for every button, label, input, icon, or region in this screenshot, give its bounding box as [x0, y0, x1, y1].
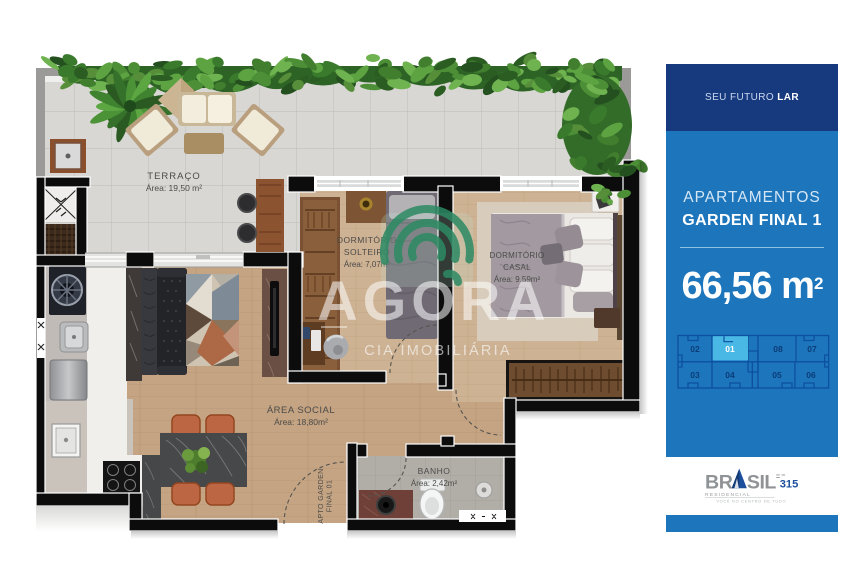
svg-text:01: 01 [725, 344, 735, 354]
svg-text:03: 03 [690, 370, 700, 380]
svg-text:CIA IMOBILIÁRIA: CIA IMOBILIÁRIA [364, 342, 511, 359]
svg-text:315: 315 [780, 478, 799, 490]
svg-text:02: 02 [690, 344, 700, 354]
svg-text:Área: 2,42m²: Área: 2,42m² [411, 479, 458, 488]
svg-text:08: 08 [773, 344, 783, 354]
svg-text:SIL: SIL [747, 471, 777, 493]
svg-text:04: 04 [725, 370, 735, 380]
svg-text:RESIDENCIAL: RESIDENCIAL [705, 492, 751, 498]
svg-text:Área: 19,50 m²: Área: 19,50 m² [146, 183, 202, 193]
svg-text:AGORA: AGORA [317, 269, 550, 332]
svg-text:APTO GARDEN: APTO GARDEN [318, 468, 325, 523]
svg-text:06: 06 [806, 370, 816, 380]
svg-text:TERRAÇO: TERRAÇO [147, 171, 200, 182]
svg-text:BANHO: BANHO [418, 466, 451, 476]
svg-text:BR: BR [705, 471, 733, 493]
svg-text:07: 07 [807, 344, 817, 354]
svg-text:Área: 18,80m²: Área: 18,80m² [274, 417, 328, 427]
svg-text:DORMITÓRIO: DORMITÓRIO [490, 251, 545, 260]
svg-text:FINAL 01: FINAL 01 [327, 480, 334, 513]
svg-text:05: 05 [772, 370, 782, 380]
svg-text:VOCÊ NO CENTRO DE TUDO: VOCÊ NO CENTRO DE TUDO [716, 498, 786, 503]
svg-text:ÁREA SOCIAL: ÁREA SOCIAL [267, 405, 335, 416]
